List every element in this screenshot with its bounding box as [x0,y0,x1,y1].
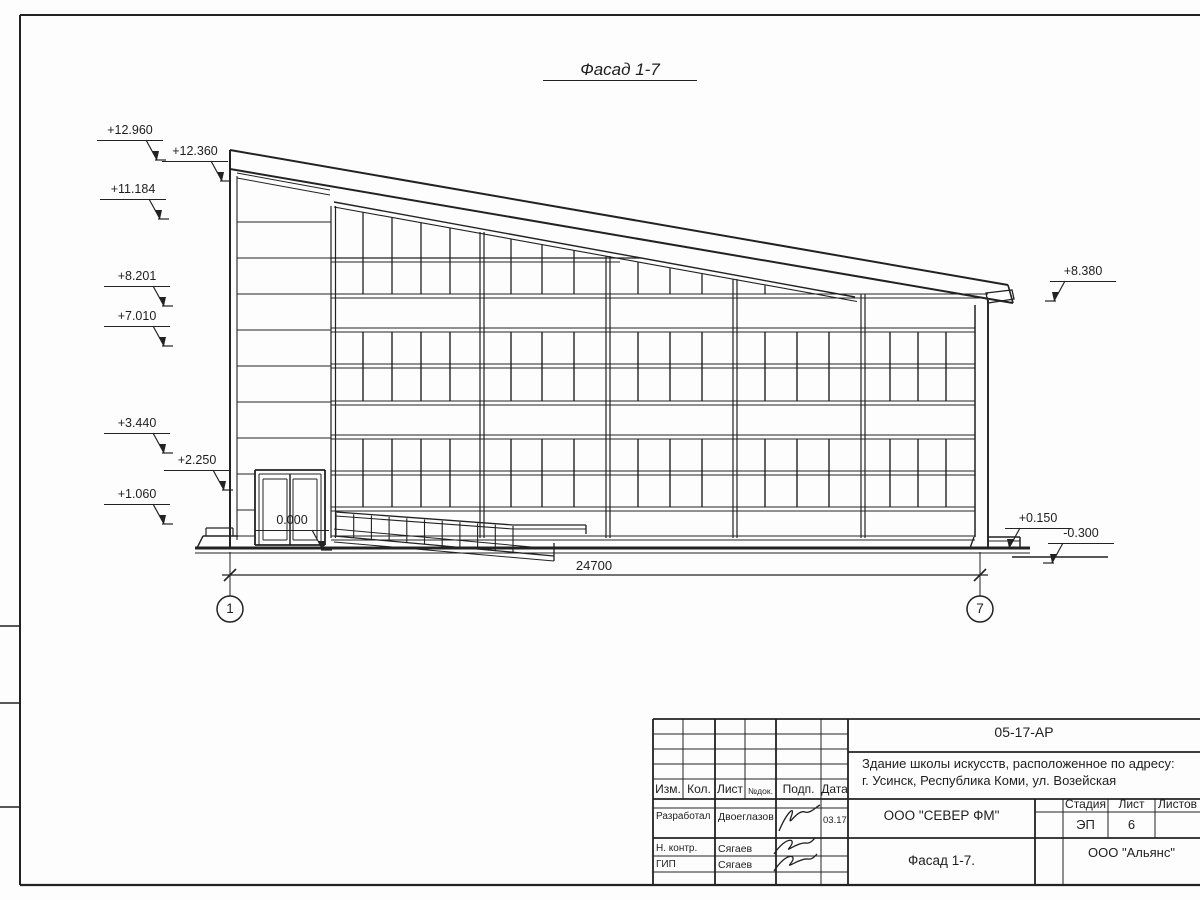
client-name: ООО "Альянс" [1063,845,1200,860]
elevation-mark: +7.010 [104,309,170,327]
dimension-label: 24700 [559,558,629,573]
row-role: ГИП [656,859,676,870]
row-date: 03.17 [823,815,847,826]
elevation-mark: +2.250 [164,453,230,471]
row-name: Двоеглазов [718,811,774,823]
col-data: Дата [821,782,848,796]
drawing-sheet: Фасад 1-7 +12.960 +12.360 +11.184 +8.201… [0,0,1200,900]
col-list: Лист [715,782,745,796]
elevation-mark: +11.184 [100,182,166,200]
stage-label: Стадия [1063,797,1108,811]
drawing-title: Фасад 1-7 [543,60,697,81]
col-izm: Изм. [653,782,683,796]
axis-bubble-7: 7 [967,601,993,616]
elevation-mark: 0.000 [255,513,329,531]
sheet-subtitle: Фасад 1-7. [848,853,1035,868]
stage-value: ЭП [1063,817,1108,832]
col-podp: Подп. [776,782,821,796]
row-role: Разработал [656,811,710,822]
elevation-mark: +8.380 [1050,264,1116,282]
col-kol: Кол. [683,782,715,796]
org-name: ООО "СЕВЕР ФМ" [848,808,1035,823]
elevation-mark: +12.960 [97,123,163,141]
project-name-line1: Здание школы искусств, расположенное по … [862,756,1175,771]
elevation-mark: -0.300 [1048,526,1114,544]
sheet-number: 6 [1108,817,1155,832]
elevation-mark: +12.360 [162,144,228,162]
doc-code: 05-17-АР [848,724,1200,740]
elevation-mark: +8.201 [104,269,170,287]
row-role: Н. контр. [656,843,697,854]
elevation-mark: +1.060 [104,487,170,505]
project-name-line2: г. Усинск, Республика Коми, ул. Возейска… [862,773,1116,788]
axis-bubble-1: 1 [217,601,243,616]
sheet-label: Лист [1108,797,1155,811]
row-name: Сягаев [718,859,752,871]
elevation-mark: +3.440 [104,416,170,434]
col-ndok: №док. [745,786,776,796]
row-name: Сягаев [718,843,752,855]
sheets-label: Листов [1155,797,1200,811]
